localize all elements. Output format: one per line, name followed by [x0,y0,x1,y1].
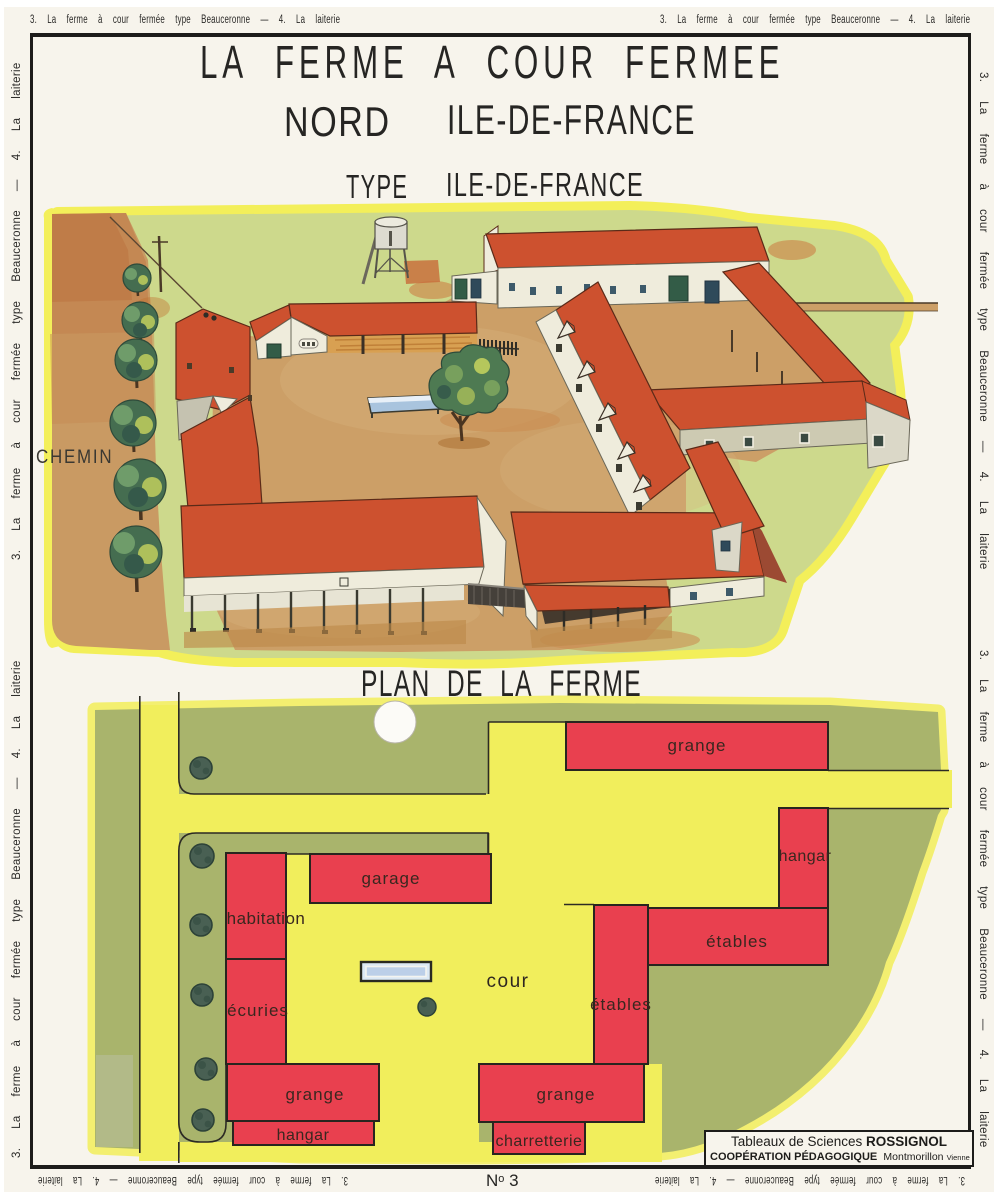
svg-text:grange: grange [537,1085,596,1104]
svg-text:habitation: habitation [227,909,306,928]
svg-text:hangar: hangar [277,1127,330,1144]
svg-text:garage: garage [362,869,421,888]
svg-text:cour: cour [487,971,530,992]
svg-text:hangar: hangar [779,848,832,865]
svg-text:charretterie: charretterie [496,1133,583,1150]
svg-text:grange: grange [286,1085,345,1104]
svg-text:étables: étables [590,995,652,1014]
svg-text:écuries: écuries [227,1001,289,1020]
svg-text:étables: étables [706,932,768,951]
svg-text:grange: grange [668,736,727,755]
